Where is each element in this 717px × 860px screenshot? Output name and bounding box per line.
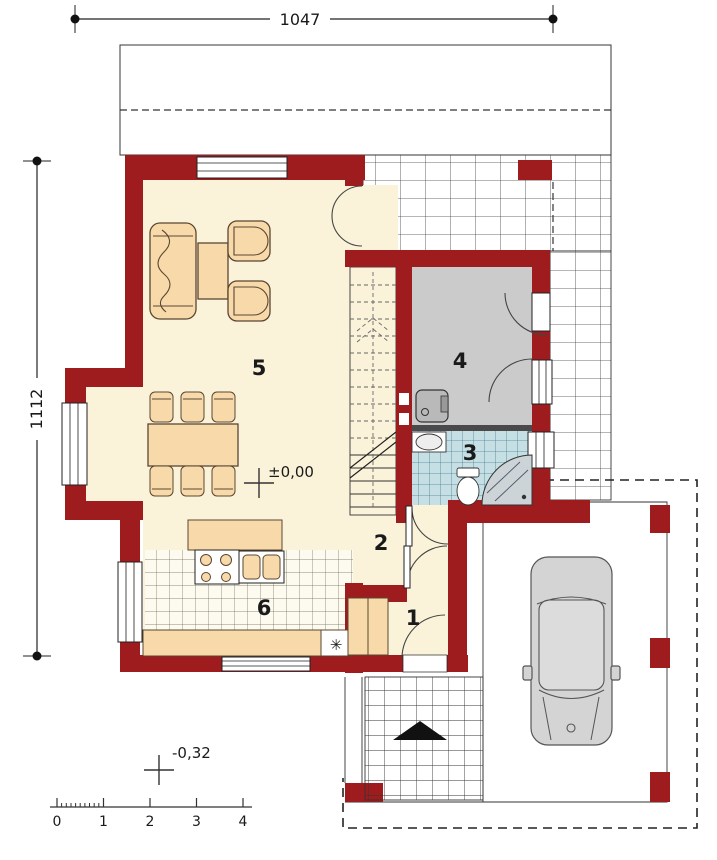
room-label-6: 6 (257, 596, 272, 620)
scale-label-2: 2 (146, 814, 155, 830)
level-exterior-label: -0,32 (172, 744, 211, 762)
cooktop (195, 550, 239, 584)
terrace-right-band-grid (363, 155, 611, 251)
dimension-height-label: 1112 (27, 389, 46, 430)
living-wall-right-top (345, 155, 363, 187)
scale-label-3: 3 (192, 814, 201, 830)
dining-set (148, 392, 238, 496)
dimension-marker (71, 15, 80, 24)
carport-pillar (650, 638, 670, 668)
entrance-porch (345, 677, 483, 800)
level-interior-label: ±0,00 (268, 463, 314, 481)
wardrobe (348, 598, 388, 655)
flue-opening (399, 393, 409, 405)
dimension-top: 1047 (71, 5, 558, 33)
window-kitchen-bottom (222, 657, 310, 671)
room-label-4: 4 (453, 349, 468, 373)
dimension-width-label: 1047 (280, 10, 321, 29)
wall-mid-horizontal (345, 250, 550, 267)
wall-right-hall (448, 505, 467, 662)
car-mirror-left (523, 666, 532, 680)
utility-bath-divider (412, 425, 532, 431)
sofa (150, 223, 196, 319)
terrace-pillar (518, 160, 552, 180)
dimension-marker (549, 15, 558, 24)
kitchen-sink (239, 551, 284, 583)
car (523, 557, 620, 745)
window-kitchen-left (118, 562, 142, 642)
dimension-left: 1112 (23, 157, 51, 661)
carport-pillar (650, 505, 670, 533)
room-label-1: 1 (406, 606, 421, 630)
wall-left-upper (125, 155, 143, 387)
floor-plan-page: ✳ (0, 0, 717, 860)
kitchen-counter-bottom (143, 630, 321, 656)
fireplace: ✳ (321, 630, 352, 656)
level-marker-exterior: -0,32 (144, 744, 211, 785)
window-bay-left (62, 403, 87, 485)
carport-pillar (650, 772, 670, 802)
bay-floor (85, 386, 143, 502)
car-roof (539, 600, 604, 690)
terrace-top-grid (120, 45, 611, 155)
flue-opening (399, 413, 409, 425)
level-cross-icon (144, 755, 174, 785)
coffee-table (198, 243, 228, 299)
porch-side-wall-lines (345, 677, 362, 783)
toilet (457, 468, 479, 505)
scale-bar: 0 1 2 3 4 (50, 798, 252, 830)
boiler (416, 390, 448, 422)
dining-table (148, 424, 238, 466)
dimension-marker (33, 652, 42, 661)
window-living-top (197, 157, 287, 178)
fireplace-icon: ✳ (330, 636, 343, 654)
scale-label-1: 1 (99, 814, 108, 830)
terrace-side-strip-grid (550, 251, 611, 500)
armchair (228, 221, 270, 261)
car-mirror-right (611, 666, 620, 680)
dimension-marker (33, 157, 42, 166)
room-label-5: 5 (252, 356, 267, 380)
floor-plan-drawing: ✳ (0, 0, 717, 860)
scale-label-4: 4 (239, 814, 248, 830)
scale-label-0: 0 (53, 814, 62, 830)
armchair (228, 281, 270, 321)
bathroom-sink (412, 432, 446, 452)
room-label-2: 2 (374, 531, 389, 555)
room-label-3: 3 (463, 441, 478, 465)
kitchen-counter-top (188, 520, 282, 550)
